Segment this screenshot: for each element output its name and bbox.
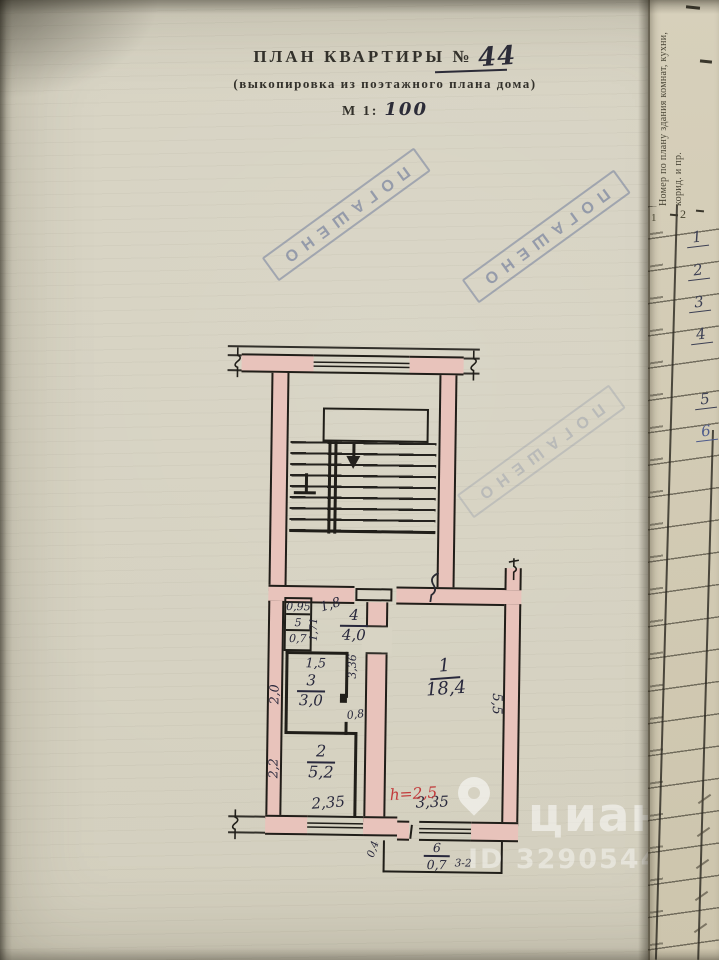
column-number-right: 2 <box>680 207 686 222</box>
page-edge-shadow <box>0 948 719 960</box>
wall-face-line <box>228 345 480 350</box>
map-pin-hole <box>466 785 483 802</box>
room1-area: 18,4 <box>417 678 474 701</box>
wall-break-mark <box>229 809 241 839</box>
scanned-plan-page: ПЛАН КВАРТИРЫ №44 (выкопировка из поэтаж… <box>0 0 719 960</box>
room-label-2: 2 5,2 <box>301 743 342 781</box>
room-label-3: 3 3,0 <box>293 673 329 709</box>
partition-wall <box>286 651 348 654</box>
balcony-outline <box>383 840 385 872</box>
wall-segment <box>241 353 313 373</box>
balcony-number: 6 <box>424 841 450 857</box>
room4-area: 4,0 <box>336 627 372 643</box>
dim-room2-depth: 2,2 <box>265 748 281 788</box>
wall-segment <box>268 373 289 591</box>
wall-break-mark <box>507 558 521 580</box>
page-edge-shadow <box>0 0 12 960</box>
dim-toilet-depth: 1,71 <box>308 609 321 649</box>
table-row-value: 5 <box>693 389 717 411</box>
revision-squiggle <box>424 571 442 603</box>
wall-break-mark <box>467 350 479 380</box>
dim-tick <box>409 825 412 839</box>
kitchen-window <box>307 815 363 836</box>
dim-room3-door: 0,8 <box>346 707 365 722</box>
balcony-area: 0,7 <box>420 858 454 872</box>
dim-room3-depth: 2,0 <box>266 674 282 714</box>
room1-window <box>419 821 471 842</box>
dim-room5-width: 0,95 <box>286 599 310 615</box>
room5-number: 5 <box>286 615 310 631</box>
partition-wall <box>284 651 288 732</box>
stairwell-window <box>313 354 409 374</box>
table-row-value: 1 <box>685 227 709 249</box>
page-gap-shadow <box>638 0 650 960</box>
wall-segment <box>436 375 457 593</box>
stair-steps <box>289 441 436 535</box>
column-number-left: 1 <box>651 212 657 224</box>
partition-wall <box>284 731 356 735</box>
table-row-value: 6 <box>694 421 718 443</box>
table-row-value: 2 <box>686 260 710 282</box>
entry-door <box>355 588 392 602</box>
room4-number: 4 <box>340 608 368 627</box>
dim-ceiling-height: h=2,5 <box>389 783 438 804</box>
stair-landing <box>323 407 429 442</box>
table-row-value: 4 <box>689 324 713 346</box>
wall-segment <box>396 587 521 607</box>
table-dash-column <box>650 220 663 950</box>
room5-area: 0,7 <box>286 631 310 645</box>
room3-area: 3,0 <box>293 693 329 709</box>
room3-number: 3 <box>297 673 325 692</box>
stair-down-arrow <box>346 456 360 469</box>
wall-segment <box>363 816 397 836</box>
table-row-value: 3 <box>687 292 711 314</box>
room3-door-leaf <box>340 694 347 703</box>
room-label-1: 1 18,4 <box>416 655 475 701</box>
wall-segment <box>409 356 463 376</box>
dim-balcony-depth: 0,4 <box>365 839 382 859</box>
partition-wall <box>353 732 357 818</box>
wall-segment <box>471 822 518 843</box>
room2-area: 5,2 <box>301 764 341 781</box>
table-header-rotated: Номер по плану здания комнат, кухни, кор… <box>656 28 714 206</box>
room2-number: 2 <box>307 743 335 763</box>
wall-segment <box>265 815 307 836</box>
adjacent-page: Номер по плану здания комнат, кухни, кор… <box>648 0 719 960</box>
room-label-4: 4 4,0 <box>336 608 372 644</box>
stair-cut-mark <box>294 491 316 494</box>
dim-kitchen-window: 2,35 <box>311 792 346 812</box>
wall-segment <box>397 821 409 841</box>
door-jamb-line <box>366 652 388 654</box>
room-label-6: 6 0,7 <box>420 841 454 872</box>
page-corner-shadow <box>0 0 160 100</box>
dim-room3-width: 1,5 <box>305 656 326 671</box>
dim-corridor-length: 3,36 <box>346 646 360 686</box>
dim-room1-depth: 5,5 <box>489 684 506 724</box>
